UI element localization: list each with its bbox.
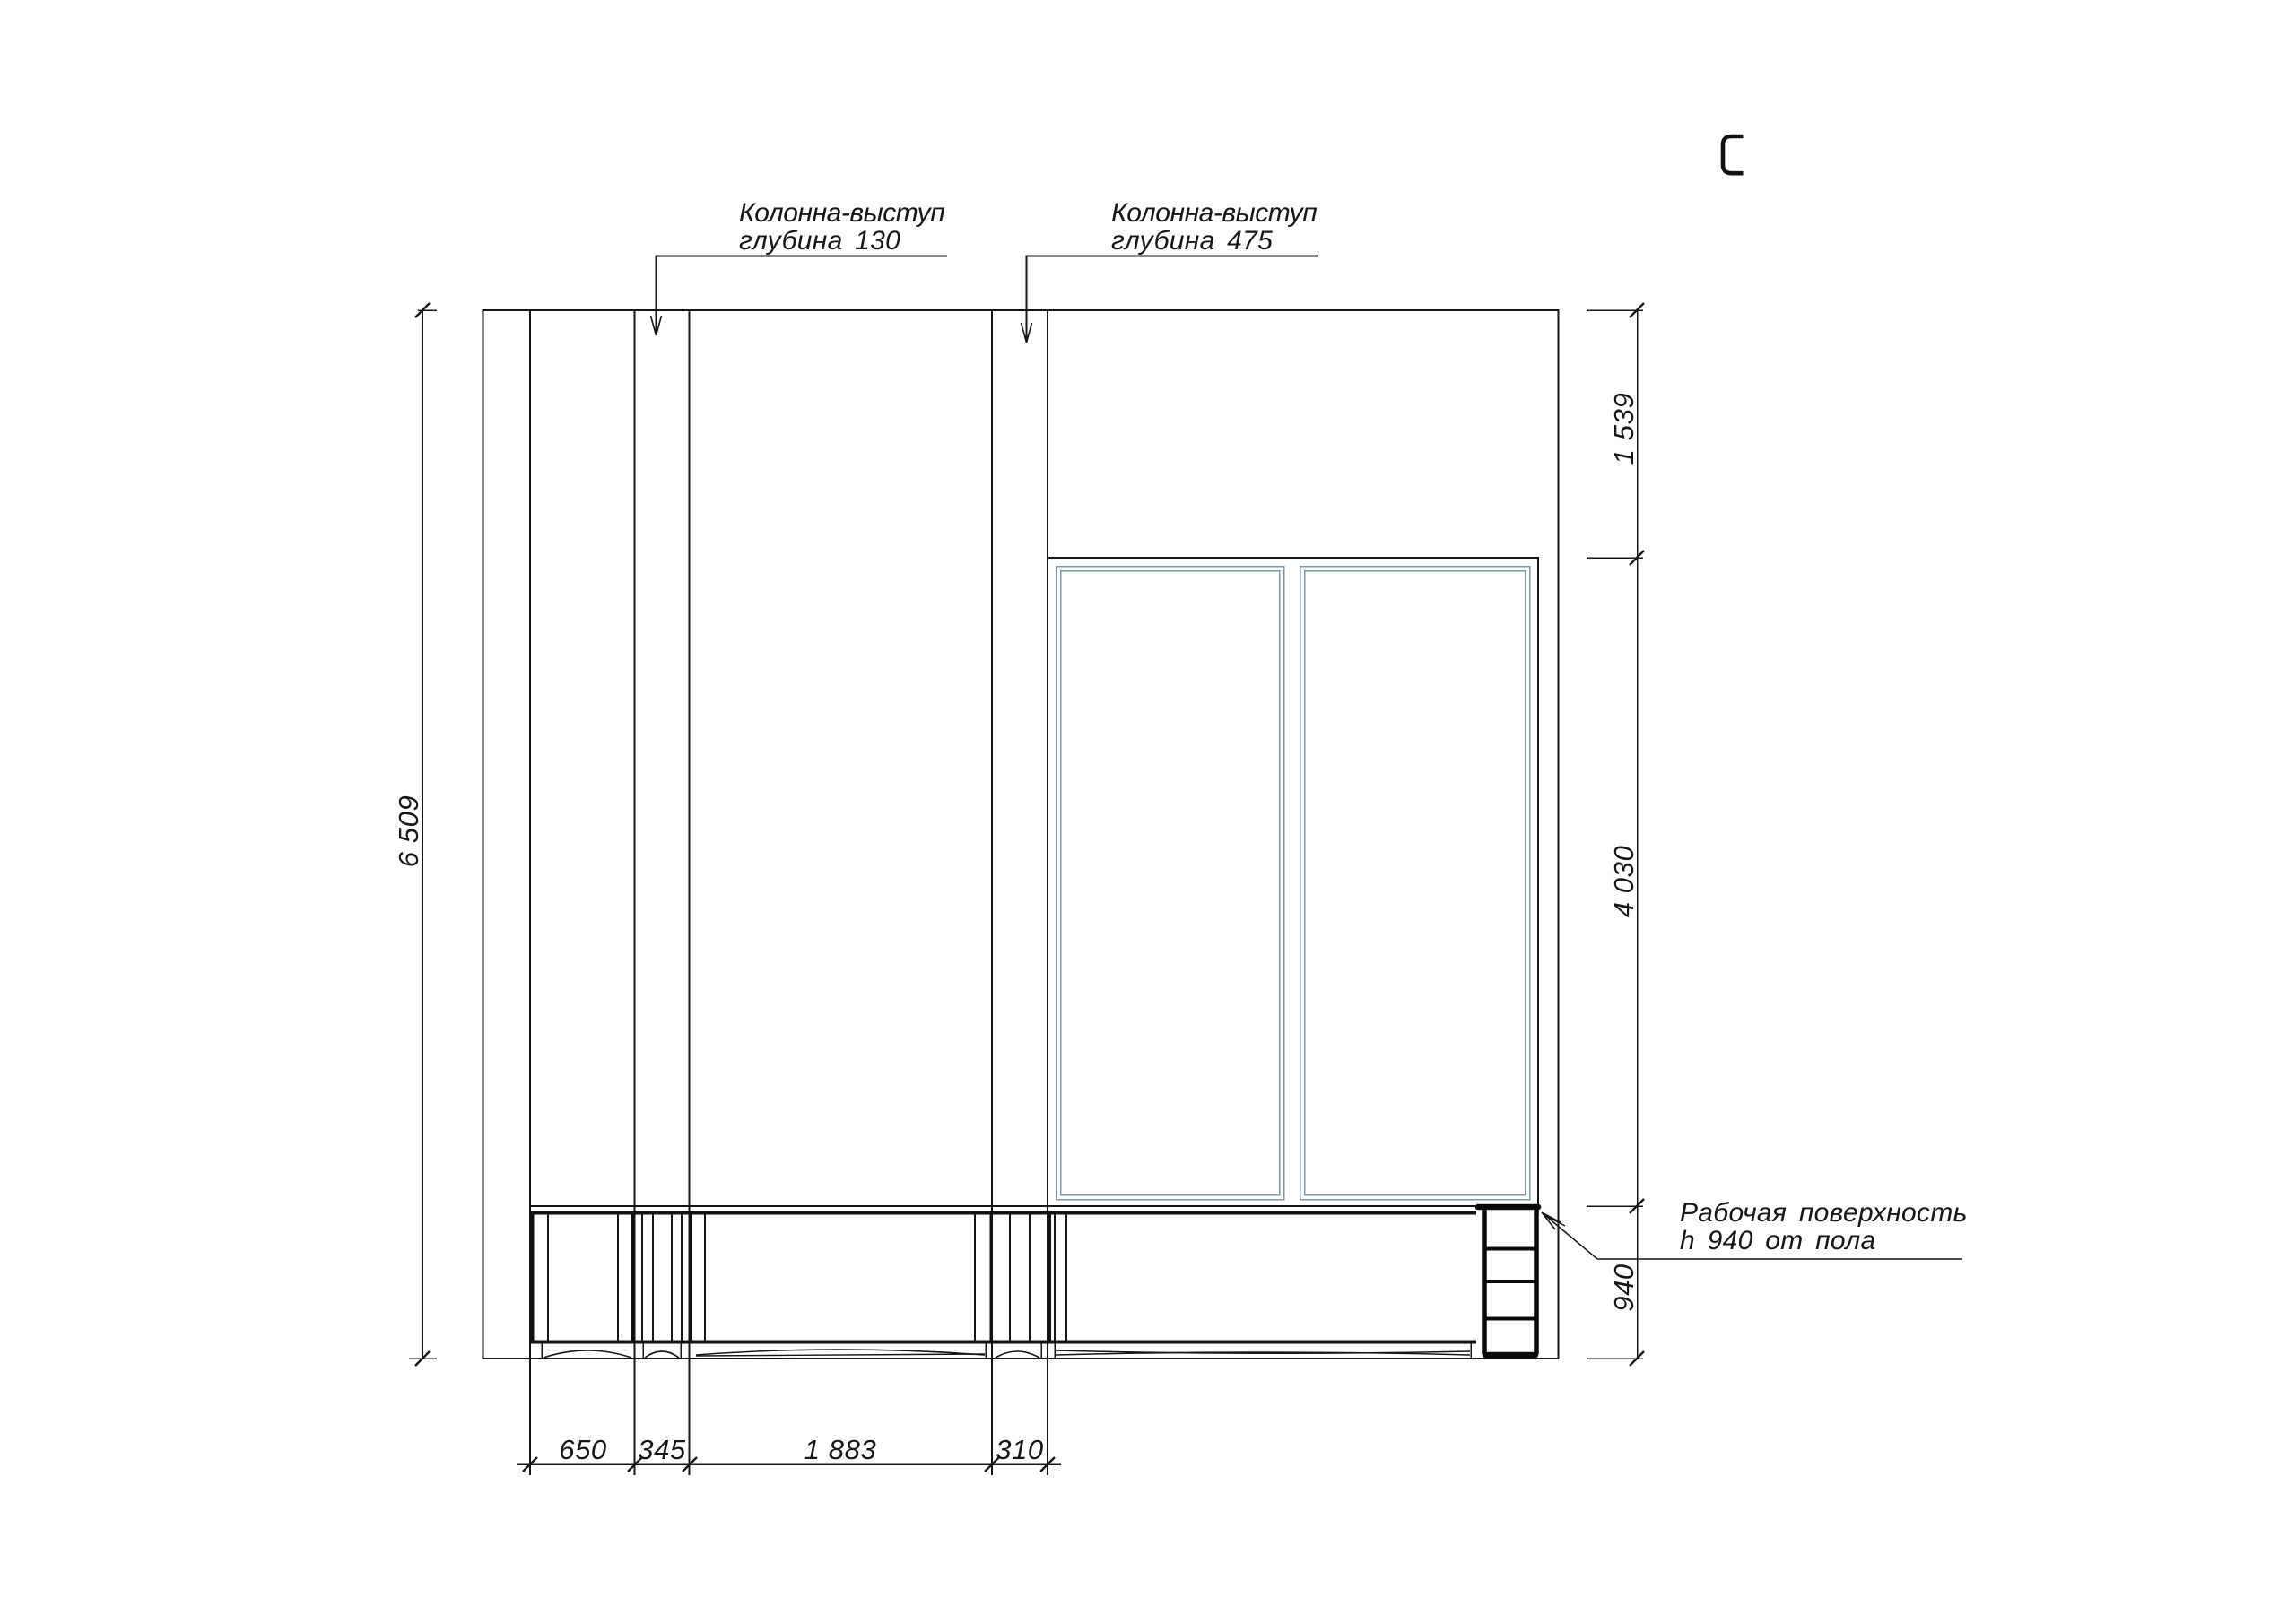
svg-text:310: 310 xyxy=(996,1434,1044,1465)
svg-text:4 030: 4 030 xyxy=(1608,846,1639,918)
svg-text:345: 345 xyxy=(638,1434,686,1465)
svg-text:6 509: 6 509 xyxy=(393,795,424,868)
svg-text:глубина 475: глубина 475 xyxy=(1111,226,1273,256)
svg-text:Рабочая поверхность: Рабочая поверхность xyxy=(1680,1198,1968,1228)
svg-text:Колонна-выступ: Колонна-выступ xyxy=(739,198,944,228)
svg-text:h 940 от пола: h 940 от пола xyxy=(1680,1226,1875,1255)
svg-text:1 883: 1 883 xyxy=(804,1434,877,1465)
svg-text:глубина 130: глубина 130 xyxy=(739,226,900,256)
svg-text:650: 650 xyxy=(559,1434,607,1465)
svg-text:1 539: 1 539 xyxy=(1608,393,1639,465)
svg-text:Колонна-выступ: Колонна-выступ xyxy=(1111,198,1317,228)
svg-text:940: 940 xyxy=(1608,1264,1639,1312)
